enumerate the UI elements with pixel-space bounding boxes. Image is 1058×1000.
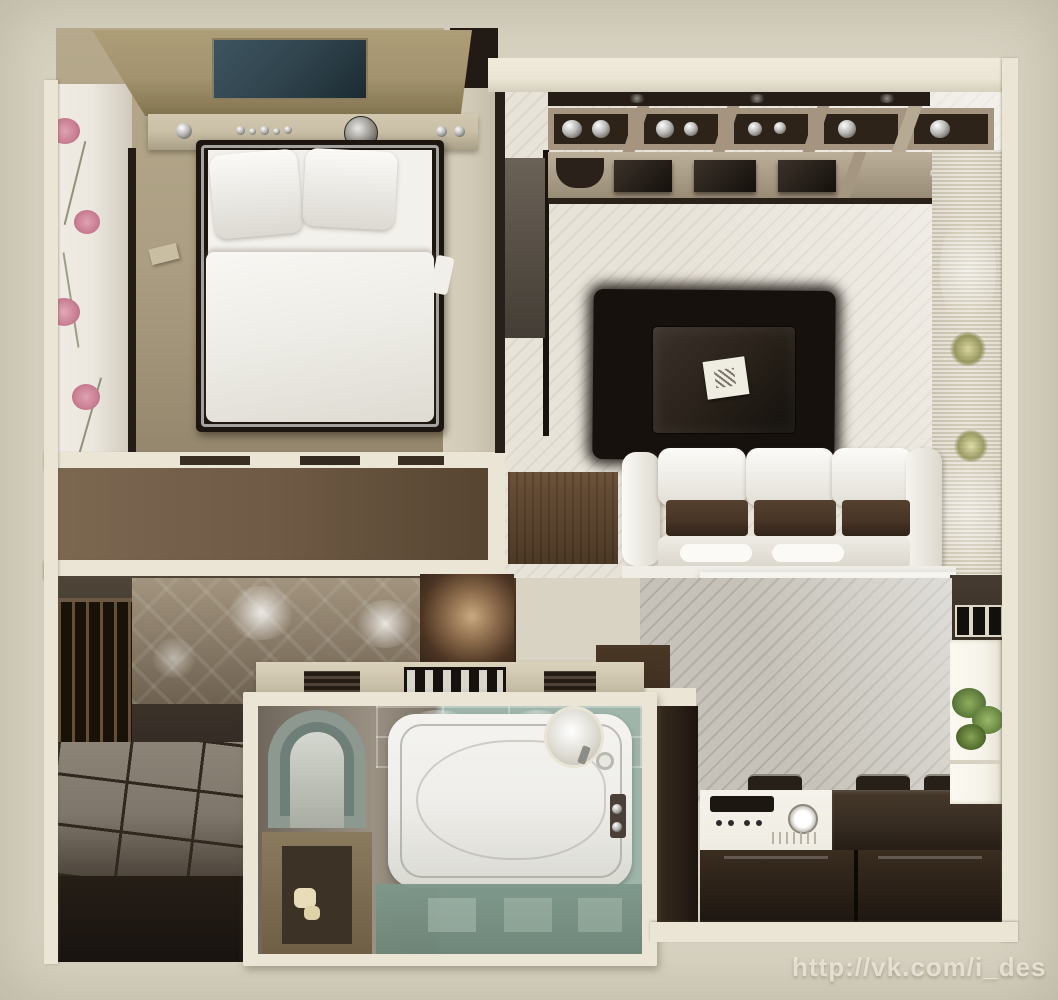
stove-knob — [728, 820, 734, 826]
tv-screen — [694, 160, 756, 192]
seat-cushion-brown — [666, 500, 748, 536]
bed — [196, 140, 444, 432]
decor-bowl — [656, 120, 674, 138]
drawer-handle — [878, 856, 982, 859]
kitchen-drawer-row — [700, 850, 1010, 926]
stove-knob — [716, 820, 722, 826]
vanity-niche-dark — [282, 846, 352, 944]
entry-shadow-panel — [505, 158, 545, 338]
wall-frame — [955, 605, 971, 637]
table-decor-sketch — [714, 368, 736, 389]
faucet-knob — [612, 804, 622, 814]
flower-bloom — [72, 384, 100, 410]
glass-light-square — [578, 898, 622, 932]
ledge-divider — [838, 152, 867, 198]
sofa-corner-section — [906, 448, 942, 576]
display-niche — [824, 114, 898, 144]
decor-bowl — [774, 122, 786, 134]
cosmetic-item — [436, 126, 447, 137]
tub-drain — [596, 752, 614, 770]
curtain-window-band — [932, 150, 1005, 578]
console-scallop-shelf — [556, 158, 604, 188]
tv-screen — [778, 160, 836, 192]
sofa-armrest-left — [622, 452, 660, 566]
duvet — [206, 252, 434, 422]
display-niche — [734, 114, 808, 144]
bathroom-interior — [258, 706, 642, 954]
outer-wall-right — [1002, 58, 1018, 942]
hob-dark — [710, 796, 774, 812]
cosmetic-item — [260, 126, 269, 135]
media-wall-top-strip — [548, 92, 930, 106]
window-sill-line — [950, 760, 1004, 764]
outer-wall-bottom — [650, 922, 1018, 942]
corridor-floor — [56, 468, 504, 566]
ceiling-spot — [748, 94, 766, 103]
cosmetic-item — [249, 128, 256, 135]
sofa-back-cushion — [746, 448, 834, 506]
decor-bowl — [592, 120, 610, 138]
curtain-flower-decal — [954, 430, 988, 462]
stove-counter-white — [700, 790, 832, 850]
sofa — [622, 448, 942, 578]
drawer-gap — [854, 850, 858, 926]
faucet-knob — [612, 822, 622, 832]
sofa-back-cushion — [658, 448, 746, 506]
cosmetic-item — [454, 126, 465, 137]
light-glare — [940, 210, 996, 330]
flower-bloom — [74, 210, 100, 234]
outer-wall-top — [488, 58, 1016, 92]
round-sink — [544, 706, 604, 768]
coffee-table — [652, 326, 796, 434]
bedroom-wall-edge-left — [128, 148, 136, 458]
perfume-bottle — [176, 123, 192, 139]
decor-bowl — [562, 120, 582, 138]
kitchen-clock — [788, 804, 818, 834]
ceiling-spot — [878, 94, 896, 103]
outer-wall-left — [44, 80, 58, 964]
candle — [294, 888, 316, 908]
ceiling-spot — [628, 94, 646, 103]
cosmetic-item — [236, 126, 245, 135]
glass-light-square — [428, 898, 476, 932]
stove-knob — [756, 820, 762, 826]
accent-pillow — [260, 186, 346, 260]
spotlight — [152, 638, 196, 678]
display-niche — [914, 114, 988, 144]
media-wall-niche-row — [548, 108, 994, 150]
stove-knob — [744, 820, 750, 826]
window-plant — [946, 684, 1010, 760]
sofa-side-brown-mat — [508, 472, 618, 564]
glass-light-square — [504, 898, 552, 932]
wall-frame — [971, 605, 987, 637]
tv-screen — [614, 160, 672, 192]
spotlight — [356, 600, 414, 648]
seat-cushion-brown — [842, 500, 910, 536]
cosmetic-item — [284, 126, 292, 134]
cosmetic-item — [273, 128, 280, 135]
wall-frame — [987, 605, 1003, 637]
sofa-seat-pad — [772, 544, 844, 562]
sliding-door-track — [300, 456, 360, 465]
ac-glass-panel — [212, 38, 368, 100]
spotlit-brown-column — [420, 574, 514, 668]
sliding-door-track — [180, 456, 250, 465]
plant-foliage — [956, 724, 986, 750]
sofa-seat-pad — [680, 544, 752, 562]
floor-plan: http://vk.com/i_des — [0, 0, 1058, 1000]
sliding-door-track — [398, 456, 444, 465]
dish-rack — [772, 832, 816, 844]
media-wall-base-line — [548, 198, 962, 204]
media-console-ledge — [548, 152, 994, 198]
decor-bowl — [838, 120, 856, 138]
decor-bowl — [748, 122, 762, 136]
spotlight — [228, 586, 294, 640]
partition-dark-stripe — [495, 85, 505, 453]
decor-bowl — [684, 122, 698, 136]
drawer-handle — [724, 856, 828, 859]
candle — [304, 906, 320, 920]
hallway-floor-tiles — [58, 742, 250, 876]
shower-arch-inner — [290, 732, 344, 828]
seat-cushion-brown — [754, 500, 836, 536]
decor-bowl — [930, 120, 950, 138]
sofa-back-cushion — [832, 448, 912, 506]
watermark: http://vk.com/i_des — [792, 952, 1047, 983]
curtain-flower-decal — [950, 332, 986, 366]
hallway-wardrobe — [58, 598, 132, 756]
